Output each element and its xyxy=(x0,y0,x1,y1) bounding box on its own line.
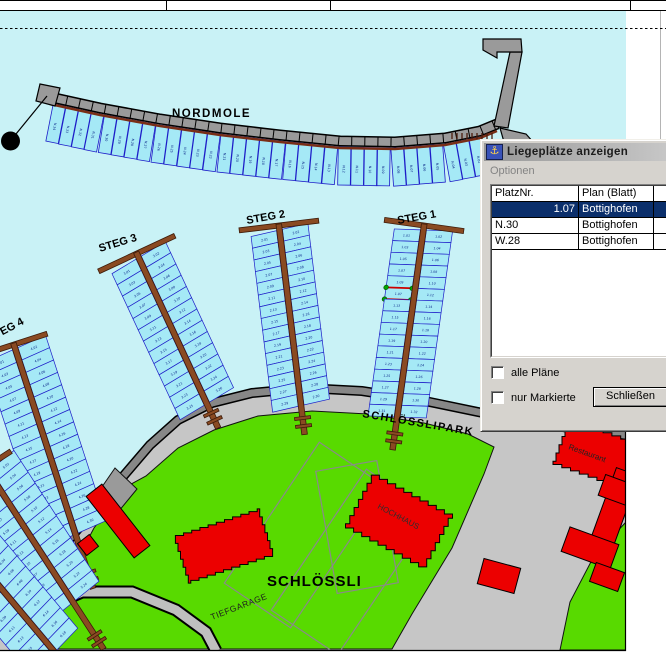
svg-text:1.30: 1.30 xyxy=(412,398,420,402)
svg-text:N.07: N.07 xyxy=(409,165,414,173)
checkbox-box[interactable] xyxy=(491,366,504,379)
anchor-icon: ⚓ xyxy=(486,144,503,160)
svg-text:1.01: 1.01 xyxy=(403,234,411,238)
svg-text:1.14: 1.14 xyxy=(425,305,433,309)
table-row[interactable]: N.30 Bottighofen xyxy=(492,218,666,234)
berth[interactable]: N.06 xyxy=(417,145,432,184)
berth[interactable]: N.07 xyxy=(404,146,419,185)
berth[interactable]: N.08 xyxy=(391,147,406,186)
svg-text:1.10: 1.10 xyxy=(428,281,436,285)
svg-text:N.20: N.20 xyxy=(235,154,240,162)
svg-text:1.20: 1.20 xyxy=(420,340,428,344)
mooring-buoy xyxy=(1,132,20,151)
svg-text:1.15: 1.15 xyxy=(391,315,399,319)
table-row[interactable]: 1.07 Bottighofen xyxy=(492,202,666,218)
svg-text:N.13: N.13 xyxy=(327,164,332,172)
svg-text:1.08: 1.08 xyxy=(430,270,438,274)
svg-text:N.08: N.08 xyxy=(396,166,401,174)
berth[interactable]: N.11 xyxy=(351,147,364,185)
col-header-plan[interactable]: Plan (Blatt) xyxy=(579,186,654,201)
svg-text:N.11: N.11 xyxy=(355,166,359,174)
svg-text:N.19: N.19 xyxy=(248,156,253,164)
svg-text:1.32: 1.32 xyxy=(410,410,418,414)
svg-text:1.24: 1.24 xyxy=(417,363,425,367)
svg-text:N.10: N.10 xyxy=(368,166,372,174)
svg-text:1.09: 1.09 xyxy=(396,280,404,284)
svg-text:1.28: 1.28 xyxy=(413,387,421,391)
svg-text:1.05: 1.05 xyxy=(399,257,407,261)
berth-table: PlatzNr. Plan (Blatt) 1.07 Bottighofen N… xyxy=(490,184,666,358)
dialog-menubar: Optionen xyxy=(485,163,666,179)
svg-text:N.18: N.18 xyxy=(261,157,266,165)
svg-text:N.21: N.21 xyxy=(222,153,227,161)
svg-text:1.18: 1.18 xyxy=(422,328,430,332)
checkbox-nur-markierte[interactable]: nur Markierte xyxy=(491,391,576,404)
svg-text:1.12: 1.12 xyxy=(427,293,435,297)
svg-text:1.19: 1.19 xyxy=(388,339,396,343)
svg-text:N.05: N.05 xyxy=(435,163,440,171)
svg-text:1.22: 1.22 xyxy=(418,352,426,356)
svg-text:1.26: 1.26 xyxy=(415,375,423,379)
svg-text:1.29: 1.29 xyxy=(380,397,388,401)
svg-text:1.04: 1.04 xyxy=(433,246,441,250)
label-schloessli: SCHLÖSSLI xyxy=(267,573,362,590)
svg-text:1.02: 1.02 xyxy=(435,235,443,239)
schliessen-button[interactable]: Schließen xyxy=(593,387,666,407)
dialog-title: Liegeplätze anzeigen xyxy=(507,146,628,158)
berth[interactable]: N.09 xyxy=(377,148,390,186)
berth[interactable]: N.10 xyxy=(364,148,377,186)
liegeplaetze-dialog: ⚓ Liegeplätze anzeigen Optionen PlatzNr.… xyxy=(480,139,666,432)
svg-text:1.07: 1.07 xyxy=(398,269,406,273)
svg-text:N.12: N.12 xyxy=(342,165,346,173)
menu-optionen[interactable]: Optionen xyxy=(485,165,540,177)
svg-text:N.15: N.15 xyxy=(301,161,306,169)
svg-text:1.21: 1.21 xyxy=(386,350,394,354)
table-row[interactable]: W.28 Bottighofen xyxy=(492,234,666,250)
col-header-platznr[interactable]: PlatzNr. xyxy=(492,186,579,201)
svg-text:1.27: 1.27 xyxy=(381,385,389,389)
berth[interactable]: N.05 xyxy=(430,144,445,183)
checkbox-alle-plaene[interactable]: alle Pläne xyxy=(491,366,559,379)
svg-text:N.17: N.17 xyxy=(274,159,279,167)
svg-text:1.06: 1.06 xyxy=(432,258,440,262)
svg-text:1.25: 1.25 xyxy=(383,374,391,378)
svg-text:N.14: N.14 xyxy=(314,163,319,171)
label-nordmole: NORDMOLE xyxy=(172,108,251,120)
svg-text:N.09: N.09 xyxy=(381,166,385,174)
svg-text:1.16: 1.16 xyxy=(423,316,431,320)
svg-text:1.23: 1.23 xyxy=(385,362,393,366)
dialog-titlebar[interactable]: ⚓ Liegeplätze anzeigen xyxy=(484,143,666,161)
svg-text:1.13: 1.13 xyxy=(393,304,401,308)
top-frame-bar xyxy=(0,0,666,11)
svg-text:6.17: 6.17 xyxy=(34,656,42,664)
table-header-row: PlatzNr. Plan (Blatt) xyxy=(492,186,666,202)
checkbox-box[interactable] xyxy=(491,391,504,404)
svg-text:1.17: 1.17 xyxy=(390,327,398,331)
svg-text:1.03: 1.03 xyxy=(401,245,409,249)
svg-text:N.06: N.06 xyxy=(422,164,427,172)
svg-text:1.07: 1.07 xyxy=(394,292,402,296)
svg-text:N.16: N.16 xyxy=(288,160,293,168)
berth[interactable]: N.12 xyxy=(338,147,351,185)
screen: { "frame": { "top_bar_dividers": [166, 3… xyxy=(0,0,666,666)
